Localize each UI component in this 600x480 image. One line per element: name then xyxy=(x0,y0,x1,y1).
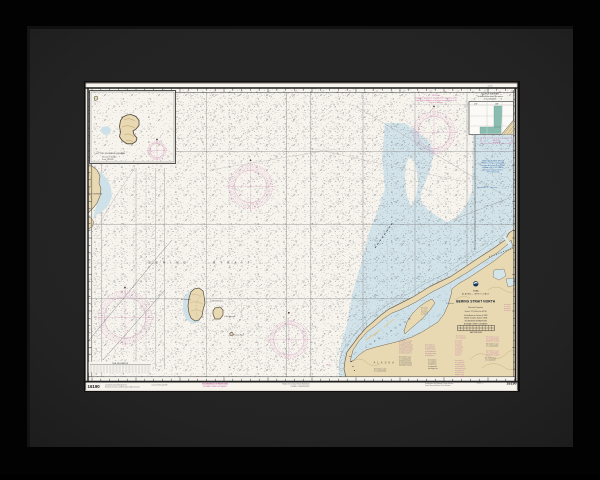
svg-text:SOURCE DIAGRAM: SOURCE DIAGRAM xyxy=(481,93,499,96)
svg-text:Notices to Mariners.: Notices to Mariners. xyxy=(428,101,444,104)
svg-text:ALASKA: ALASKA xyxy=(374,360,396,364)
svg-text:LITTLE DIOMEDE ISLAND: LITTLE DIOMEDE ISLAND xyxy=(96,152,126,155)
svg-text:BERING: BERING xyxy=(149,261,191,265)
svg-text:Big Diomede: Big Diomede xyxy=(181,299,191,301)
svg-text:ALASKA — WEST COAST: ALASKA — WEST COAST xyxy=(462,293,490,296)
svg-text:NOTE A: NOTE A xyxy=(433,94,441,97)
svg-text:STRAIT: STRAIT xyxy=(213,261,255,265)
svg-text:168°: 168° xyxy=(495,103,499,105)
svg-text:Wales: Wales xyxy=(327,365,332,367)
svg-text:16190: 16190 xyxy=(488,85,493,87)
svg-text:(Little Diomede): (Little Diomede) xyxy=(211,300,223,303)
svg-text:from Nome and by USCG on: from Nome and by USCG on xyxy=(483,169,503,171)
svg-text:Reported 1976 — see note: Reported 1976 — see note xyxy=(477,186,497,189)
svg-text:Scale 1:171,194 at Lat 65°30': Scale 1:171,194 at Lat 65°30' xyxy=(465,310,488,313)
svg-text:Scale 1:25,000: Scale 1:25,000 xyxy=(102,159,113,161)
svg-text:Mercator Projection: Mercator Projection xyxy=(468,306,483,309)
svg-text:16190: 16190 xyxy=(507,381,517,385)
svg-text:SOUNDINGS IN FATHOMS: SOUNDINGS IN FATHOMS xyxy=(202,383,228,386)
svg-text:BERING STRAIT NORTH: BERING STRAIT NORTH xyxy=(456,299,496,303)
svg-text:Little Diomede: Little Diomede xyxy=(225,315,236,318)
svg-text:MYS DEZHNEVA: MYS DEZHNEVA xyxy=(89,193,103,196)
svg-text:mariner is: mariner is xyxy=(455,355,462,357)
svg-text:(World Geodetic System 1984): (World Geodetic System 1984) xyxy=(464,316,487,319)
svg-text:SOUNDINGS IN FATHOMS: SOUNDINGS IN FATHOMS xyxy=(465,320,488,323)
svg-text:mariner is cau: mariner is cau xyxy=(455,374,464,376)
svg-text:NOAA: NOAA xyxy=(473,289,479,292)
svg-text:Fairway Rock: Fairway Rock xyxy=(234,334,244,337)
svg-text:170°: 170° xyxy=(474,103,478,105)
svg-text:16190: 16190 xyxy=(88,384,101,389)
